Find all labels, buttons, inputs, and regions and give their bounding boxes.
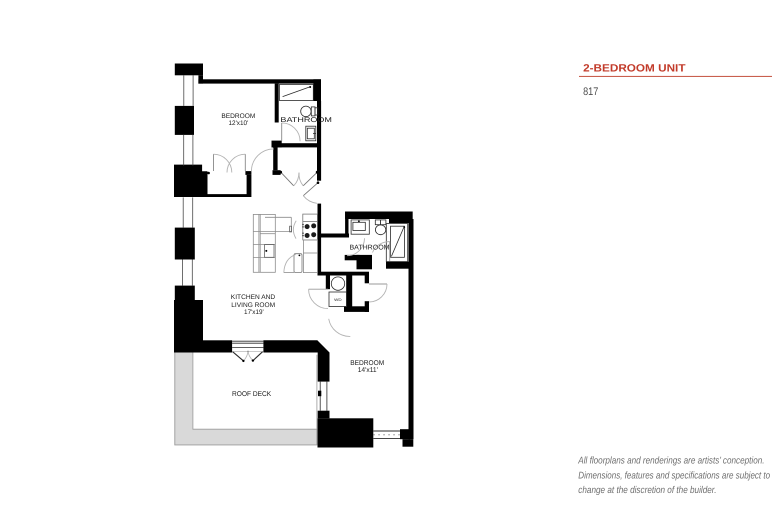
svg-text:ROOF DECK: ROOF DECK <box>232 391 272 398</box>
svg-text:BEDROOM: BEDROOM <box>221 113 255 120</box>
svg-text:14'x11': 14'x11' <box>358 367 378 374</box>
svg-text:12'x10': 12'x10' <box>229 120 249 127</box>
svg-text:LIVING ROOM: LIVING ROOM <box>231 302 275 309</box>
svg-text:BATHROOM: BATHROOM <box>350 245 390 252</box>
svg-text:WD: WD <box>334 298 342 302</box>
svg-text:817: 817 <box>583 86 598 98</box>
svg-text:Dimensions, features and speci: Dimensions, features and specifications … <box>578 470 770 481</box>
svg-text:All floorplans and renderings: All floorplans and renderings are artist… <box>577 456 764 467</box>
svg-text:17'x19': 17'x19' <box>244 309 264 316</box>
svg-text:change at the discretion of th: change at the discretion of the builder. <box>578 485 716 496</box>
svg-text:BATHROOM: BATHROOM <box>280 117 332 124</box>
svg-text:KITCHEN AND: KITCHEN AND <box>231 294 276 301</box>
svg-text:2-BEDROOM UNIT: 2-BEDROOM UNIT <box>583 62 686 74</box>
